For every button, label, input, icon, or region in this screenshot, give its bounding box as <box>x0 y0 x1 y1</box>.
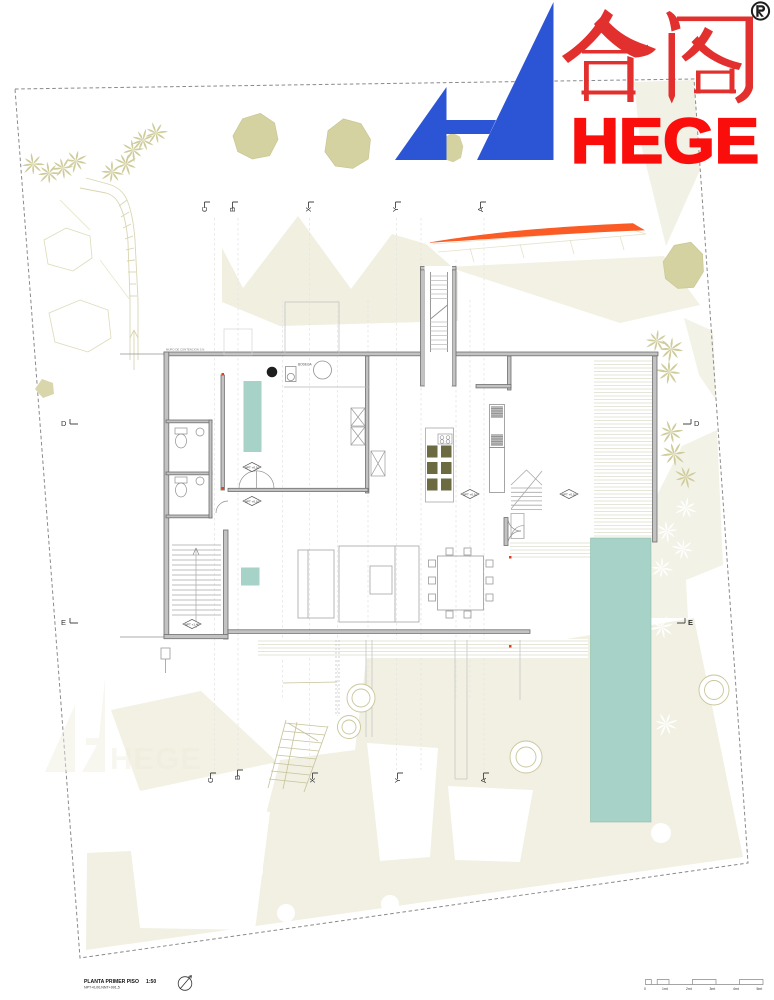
svg-text:A: A <box>479 778 488 783</box>
svg-text:NPT +1,40: NPT +1,40 <box>185 622 200 626</box>
svg-text:Y: Y <box>393 778 402 783</box>
svg-text:B: B <box>233 775 242 780</box>
svg-text:X: X <box>304 207 313 212</box>
svg-text:PLANTA PRIMER PISO: PLANTA PRIMER PISO <box>84 979 139 985</box>
svg-text:HEGE: HEGE <box>110 741 202 776</box>
svg-text:5mt: 5mt <box>757 987 763 991</box>
svg-text:E: E <box>688 618 693 627</box>
svg-text:3mt: 3mt <box>710 987 716 991</box>
svg-text:D: D <box>61 419 67 428</box>
svg-text:BODEGA: BODEGA <box>298 363 313 367</box>
svg-text:E: E <box>61 618 66 627</box>
svg-text:MURO DE CONTENCION S.N.: MURO DE CONTENCION S.N. <box>166 348 205 352</box>
svg-text:1mt: 1mt <box>662 987 668 991</box>
svg-text:C: C <box>206 777 215 783</box>
svg-text:NPT +0,10: NPT +0,10 <box>562 492 577 496</box>
svg-text:2mt: 2mt <box>686 987 692 991</box>
svg-text:A: A <box>476 207 485 212</box>
svg-text:D: D <box>694 419 700 428</box>
svg-text:0: 0 <box>644 987 646 991</box>
svg-text:NPT+0,00,NNT+991,5: NPT+0,00,NNT+991,5 <box>84 986 120 990</box>
svg-text:1:50: 1:50 <box>146 979 156 985</box>
svg-text:HEGE: HEGE <box>571 107 759 177</box>
svg-text:B: B <box>228 207 237 212</box>
svg-text:C: C <box>200 206 209 212</box>
svg-text:NPT +0,10: NPT +0,10 <box>245 465 260 469</box>
svg-text:NPT +0,10: NPT +0,10 <box>245 499 260 503</box>
svg-text:X: X <box>308 778 317 783</box>
svg-text:4mt: 4mt <box>733 987 739 991</box>
svg-text:Y: Y <box>391 207 400 212</box>
svg-text:NPT +0,10: NPT +0,10 <box>463 492 478 496</box>
